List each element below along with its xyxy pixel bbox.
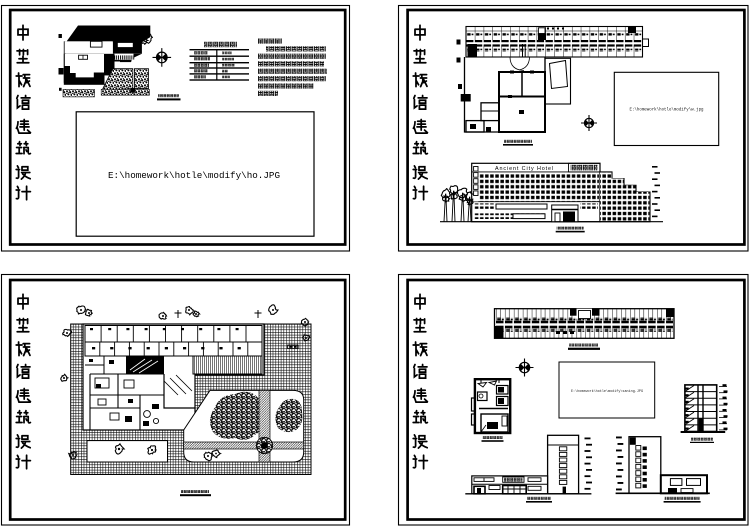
svg-text:E:\homework\hotle\modify\w.jpg: E:\homework\hotle\modify\w.jpg	[630, 107, 704, 113]
svg-text:Ancient City Hotel: Ancient City Hotel	[495, 166, 554, 172]
svg-text:E:\homework\hotle\modify\ho.JP: E:\homework\hotle\modify\ho.JPG	[108, 170, 280, 181]
svg-text:E:\homework\hotle\modify\sanin: E:\homework\hotle\modify\saning.JPG	[571, 389, 644, 394]
